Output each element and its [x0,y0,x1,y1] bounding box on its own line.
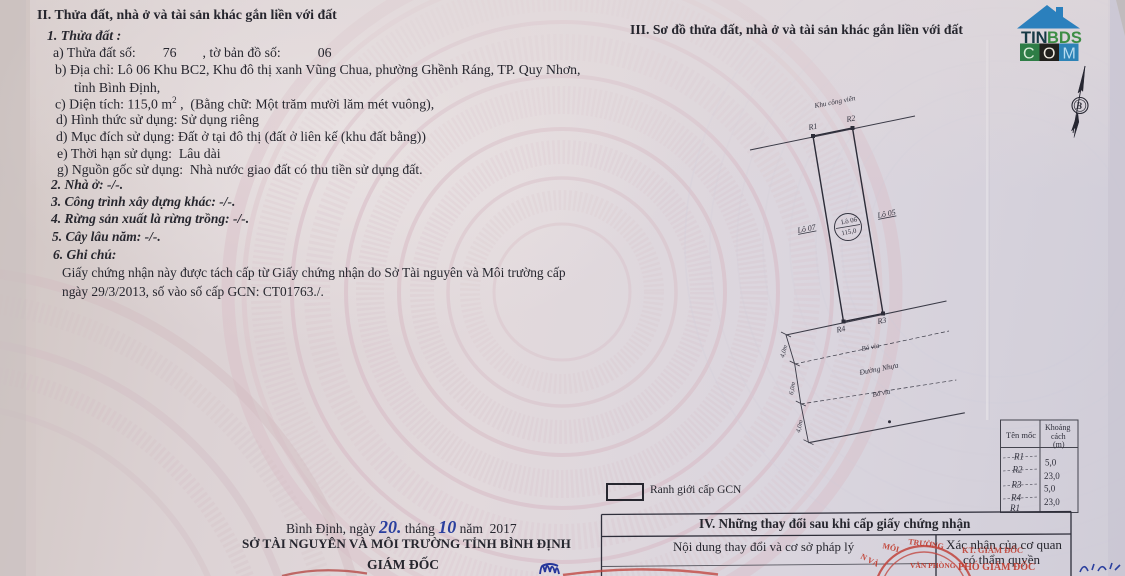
svg-text:R2: R2 [1012,465,1023,475]
svg-text:4,0m: 4,0m [795,419,805,433]
svg-text:5,0: 5,0 [1044,484,1056,494]
svg-text:R3: R3 [876,315,887,326]
svg-text:C: C [1023,46,1035,63]
svg-text:Lô 05: Lô 05 [876,208,897,221]
svg-text:B: B [1075,101,1082,111]
svg-text:TRƯỜNG: TRƯỜNG [908,536,945,551]
svg-text:115,0: 115,0 [841,227,858,237]
svg-text:(m): (m) [1053,440,1065,449]
svg-text:R1: R1 [807,121,818,132]
svg-text:R3: R3 [1011,480,1022,490]
svg-text:Khoảng: Khoảng [1045,423,1070,432]
svg-text:Bó vỉa: Bó vỉa [872,388,892,399]
svg-text:5,0: 5,0 [1045,458,1057,468]
svg-text:R2: R2 [845,113,856,124]
svg-text:Lô 07: Lô 07 [796,222,818,235]
svg-text:VĂN PHÒNG: VĂN PHÒNG [910,560,956,570]
svg-text:R4: R4 [835,324,846,335]
svg-text:R4: R4 [1010,493,1021,503]
svg-text:R1: R1 [1013,452,1024,462]
svg-text:Tên mốc: Tên mốc [1006,430,1036,440]
svg-text:Bó vỉa: Bó vỉa [861,342,881,353]
svg-text:Đường Nhựa: Đường Nhựa [858,361,900,378]
svg-text:KT. GIÁM ĐỐC: KT. GIÁM ĐỐC [962,545,1023,555]
svg-text:6,0m: 6,0m [788,381,797,395]
svg-text:Khu công viên: Khu công viên [813,94,857,110]
svg-text:4,0m: 4,0m [779,344,789,358]
svg-text:MÔI: MÔI [882,540,901,554]
svg-text:23,0: 23,0 [1044,471,1060,481]
svg-text:N VÀ: N VÀ [859,551,881,569]
svg-text:O: O [1043,46,1055,63]
svg-text:PHÓ GIÁM ĐỐC: PHÓ GIÁM ĐỐC [958,560,1035,573]
